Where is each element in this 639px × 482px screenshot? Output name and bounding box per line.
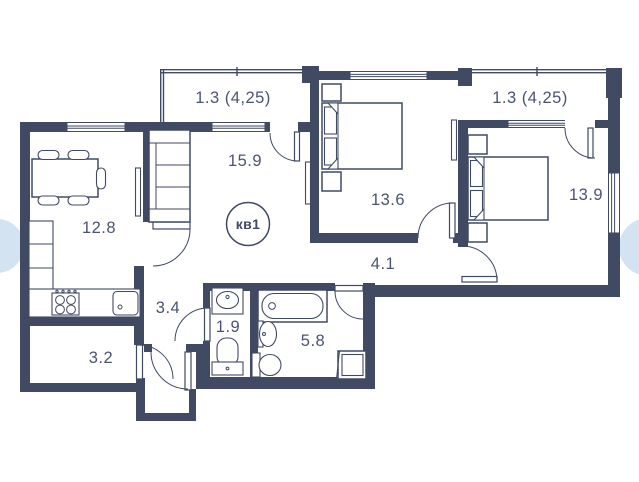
chair (38, 151, 59, 160)
door-balcony-1 (270, 122, 300, 161)
chair (38, 196, 59, 205)
floor-plan-page: 1.3 (4,25) 1.3 (4,25) 15.9 13.6 13.9 12.… (0, 0, 639, 482)
door-kitchen (153, 222, 190, 266)
room-label-balcony-top-right: 1.3 (4,25) (492, 89, 568, 107)
sofa (149, 130, 190, 222)
room-label-corridor: 3.4 (156, 299, 180, 317)
door-bedroom-2 (458, 246, 497, 285)
stove (52, 290, 79, 315)
room-label-wc: 1.9 (216, 318, 240, 336)
room-label-bedroom-2: 13.9 (569, 186, 603, 204)
window-bedroom-2-east (609, 173, 620, 233)
window-kitchen (67, 123, 125, 132)
apartment-number-badge: кв1 (227, 203, 270, 246)
nightstand (468, 135, 487, 154)
floor-plan: 1.3 (4,25) 1.3 (4,25) 15.9 13.6 13.9 12.… (0, 0, 639, 482)
door-bathroom (335, 283, 363, 319)
tv-kitchen (136, 168, 141, 216)
nightstand (468, 223, 487, 242)
room-label-bedroom-1: 13.6 (371, 191, 405, 209)
bathtub (258, 290, 327, 322)
room-label-bathroom: 5.8 (301, 332, 325, 350)
dining-table (32, 151, 106, 206)
room-label-storage: 3.2 (89, 349, 113, 367)
tv-bedroom-1 (452, 120, 457, 160)
door-balcony-2 (565, 120, 595, 158)
walls (20, 66, 622, 421)
washing-machine (337, 351, 367, 379)
window-living (212, 123, 265, 132)
room-label-kitchen: 12.8 (82, 219, 116, 237)
wc-sink (212, 288, 243, 314)
kitchen-sink (113, 292, 138, 316)
bed-2 (468, 135, 548, 242)
chair (97, 168, 106, 189)
chair (68, 196, 89, 205)
bath-sink (258, 321, 277, 347)
door-wc (175, 308, 210, 341)
room-label-balcony-top-left: 1.3 (4,25) (195, 89, 271, 107)
page-edge-dot-right (619, 218, 639, 276)
nightstand (322, 84, 341, 101)
chair (68, 151, 89, 160)
nightstand (322, 172, 341, 191)
door-entrance (151, 352, 191, 390)
window-bedroom-1 (350, 72, 427, 80)
wc-toilet (212, 338, 243, 375)
window-bedroom-2-north (508, 121, 567, 128)
door-bedroom-1 (418, 203, 455, 243)
room-label-living: 15.9 (228, 152, 262, 170)
bed-1 (322, 84, 402, 191)
bath-toilet (252, 353, 281, 377)
door-storage (137, 345, 174, 379)
apartment-number-text: кв1 (236, 216, 261, 232)
room-label-hallway: 4.1 (371, 255, 395, 273)
tv-living (306, 162, 311, 204)
